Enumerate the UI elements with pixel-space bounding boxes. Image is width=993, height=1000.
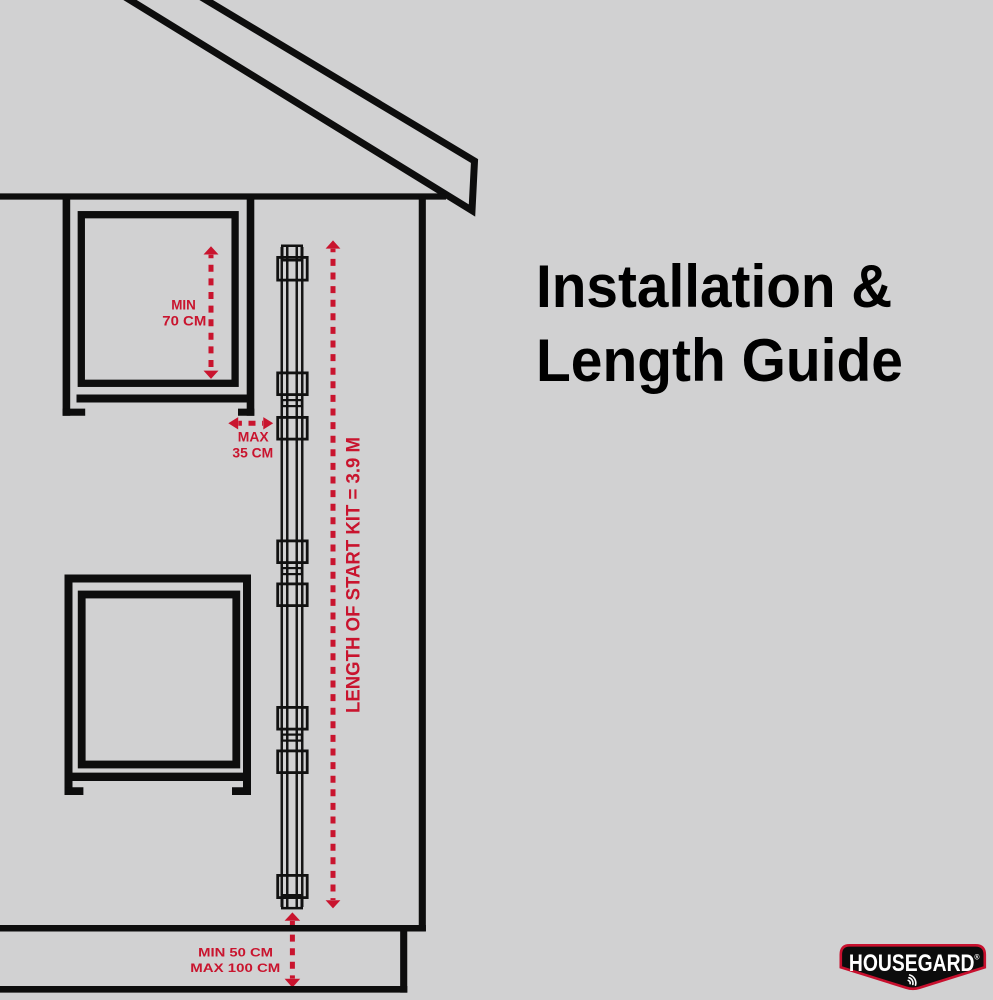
svg-text:MAX 100 CM: MAX 100 CM <box>190 961 280 975</box>
svg-text:MIN: MIN <box>171 298 196 313</box>
svg-text:MIN 50 CM: MIN 50 CM <box>198 946 273 960</box>
svg-text:35 CM: 35 CM <box>232 446 273 461</box>
svg-text:Length Guide: Length Guide <box>536 326 903 394</box>
svg-text:MAX: MAX <box>238 430 270 445</box>
svg-text:70 CM: 70 CM <box>162 313 206 328</box>
svg-text:Installation &: Installation & <box>536 252 892 320</box>
svg-text:®: ® <box>974 954 980 962</box>
svg-text:HOUSEGARD: HOUSEGARD <box>849 950 975 977</box>
svg-text:LENGTH OF START KIT = 3.9 M: LENGTH OF START KIT = 3.9 M <box>344 437 365 713</box>
